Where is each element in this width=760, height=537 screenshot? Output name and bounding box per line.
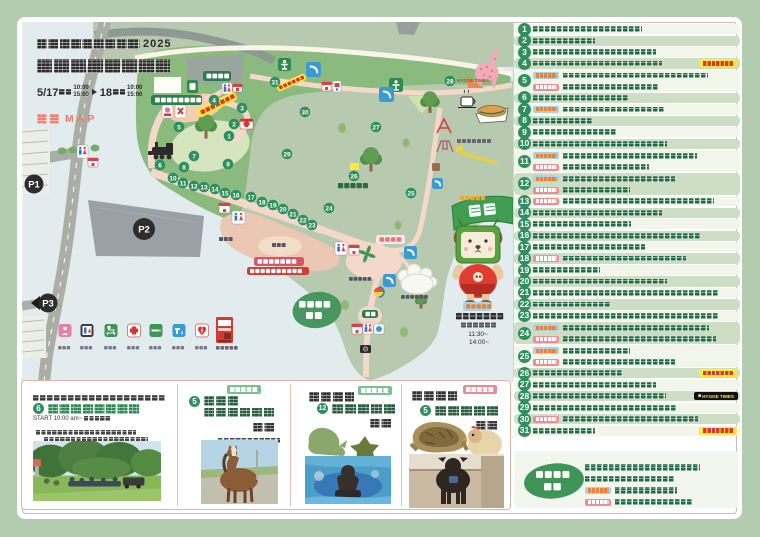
svg-text:25: 25: [407, 190, 415, 197]
svg-text:10: 10: [169, 175, 177, 182]
svg-text:19: 19: [269, 202, 277, 209]
svg-text:8: 8: [182, 164, 186, 171]
svg-text:P1: P1: [28, 179, 40, 190]
svg-text:20: 20: [279, 206, 287, 213]
svg-text:16: 16: [232, 192, 240, 199]
svg-text:12: 12: [190, 183, 198, 190]
svg-text:HYGGE TIMES: HYGGE TIMES: [457, 78, 489, 83]
svg-text:23: 23: [308, 222, 316, 229]
svg-text:29: 29: [283, 151, 291, 158]
svg-text:28: 28: [446, 78, 454, 85]
svg-text:13: 13: [200, 184, 208, 191]
svg-text:30: 30: [301, 109, 309, 116]
svg-text:24: 24: [325, 205, 333, 212]
svg-text:15: 15: [221, 190, 229, 197]
svg-text:14: 14: [211, 186, 219, 193]
svg-text:5: 5: [177, 124, 181, 131]
svg-text:17: 17: [247, 194, 255, 201]
svg-text:P3: P3: [42, 298, 54, 309]
svg-text:18: 18: [258, 199, 266, 206]
svg-text:4: 4: [212, 97, 216, 104]
svg-text:11:30~: 11:30~: [468, 331, 488, 338]
svg-text:2: 2: [232, 121, 236, 128]
svg-text:P2: P2: [138, 224, 150, 235]
svg-text:9: 9: [226, 161, 230, 168]
svg-text:22: 22: [299, 217, 307, 224]
svg-text:31: 31: [271, 79, 279, 86]
svg-text:11: 11: [180, 180, 187, 187]
svg-text:21: 21: [289, 211, 297, 218]
svg-text:7: 7: [192, 153, 196, 160]
svg-text:26: 26: [350, 173, 358, 180]
svg-text:1: 1: [227, 133, 231, 140]
svg-text:27: 27: [372, 124, 380, 131]
svg-text:6: 6: [158, 162, 162, 169]
svg-text:14:00~: 14:00~: [469, 339, 489, 346]
svg-text:3: 3: [240, 105, 244, 112]
